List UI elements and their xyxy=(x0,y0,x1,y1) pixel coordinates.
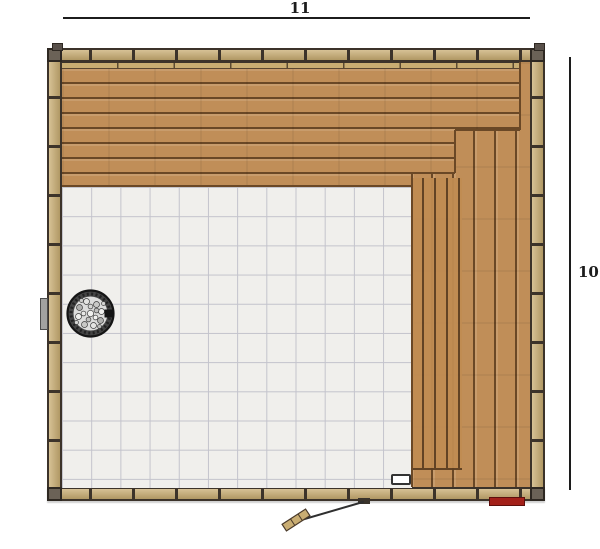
bench-joint-line xyxy=(412,172,455,174)
door-open-indicator xyxy=(250,492,390,549)
dimension-line-right xyxy=(569,57,571,490)
corner-post-bottom-right xyxy=(530,487,545,501)
upper-bench xyxy=(62,69,520,186)
floor-vent xyxy=(391,474,411,485)
bench-joint-line xyxy=(454,130,456,173)
bench-joint-line xyxy=(519,62,521,130)
dimension-label-right: 10 xyxy=(578,265,599,280)
bench-joint-line xyxy=(455,129,520,131)
heater-connection xyxy=(105,310,113,318)
dimension-line-top xyxy=(63,17,530,19)
wall-rail-top xyxy=(62,62,530,69)
corner-tab-top-right xyxy=(534,43,545,51)
wall-top xyxy=(47,48,545,62)
door-handle xyxy=(282,509,310,531)
dimension-label-top: 11 xyxy=(270,1,330,16)
sauna-floor-plan: 11 10 xyxy=(0,0,600,549)
bench-slats xyxy=(412,178,462,470)
corner-tab-top-left xyxy=(52,43,63,51)
bench-front-edge xyxy=(411,173,413,487)
wall-right xyxy=(530,48,545,501)
sauna-heater xyxy=(66,289,115,338)
threshold-marker xyxy=(489,497,525,506)
wall-junction-box xyxy=(40,298,48,330)
bench-front-edge xyxy=(62,185,412,187)
corner-post-bottom-left xyxy=(47,487,62,501)
wall-left xyxy=(47,48,62,501)
